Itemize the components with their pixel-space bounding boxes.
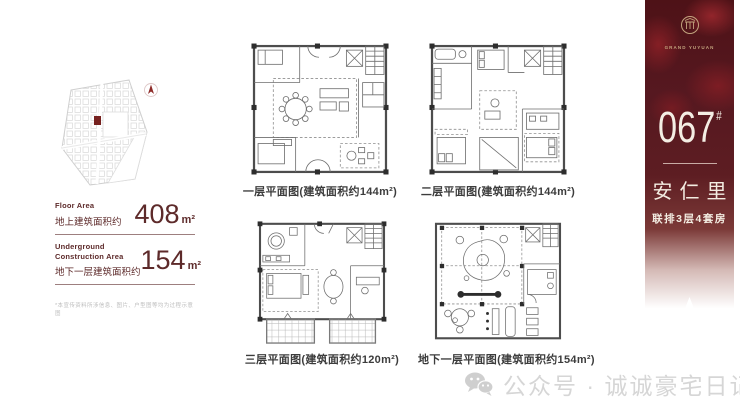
ribbon-divider [663,163,717,164]
floor-plan-first-caption: 一层平面图(建筑面积约144m²) [240,183,400,199]
floor-plan-second-caption: 二层平面图(建筑面积约144m²) [418,183,578,199]
underground-area-row: Underground Construction Area 地下一层建筑面积约 … [55,235,195,284]
floor-plan-third: 三层平面图(建筑面积约120m²) [242,220,402,367]
brand-logo: GRAND YUYUAN [645,14,734,50]
floor-plan-basement: 地下一层平面图(建筑面积约154m²) [418,220,578,367]
brand-logo-icon [673,14,707,38]
compass-icon [145,84,158,97]
unit-number: 067# [655,106,724,150]
floor-area-value: 408m² [134,201,195,228]
wechat-watermark: 公众号 · 诚诚豪宅日记 [464,367,740,401]
project-name: 安仁里 [645,175,734,204]
underground-area-label-zh: 地下一层建筑面积约 [55,264,141,278]
floor-area-row: Floor Area 地上建筑面积约 408m² [55,194,195,234]
underground-area-label-en: Underground Construction Area [55,242,127,262]
floor-area-label-zh: 地上建筑面积约 [55,214,122,228]
floor-plan-second-drawing [424,42,572,176]
floor-plan-first: 一层平面图(建筑面积约144m²) [240,42,400,199]
site-plan-map [50,74,168,196]
brochure-page: Floor Area 地上建筑面积约 408m² Underground Con… [0,0,740,411]
floor-plan-third-caption: 三层平面图(建筑面积约120m²) [242,351,402,367]
floor-area-label-en: Floor Area [55,201,122,211]
underground-area-value: 154m² [141,247,202,274]
floor-plan-first-drawing [246,42,394,176]
wechat-icon [464,371,494,397]
floor-plan-basement-caption: 地下一层平面图(建筑面积约154m²) [418,351,578,367]
area-info-panel: Floor Area 地上建筑面积约 408m² Underground Con… [55,194,195,317]
floor-plan-second: 二层平面图(建筑面积约144m²) [418,42,578,199]
highlighted-unit-marker [94,116,101,125]
divider [55,284,195,285]
project-ribbon: GRAND YUYUAN 067# 安仁里 联排3层4套房 [645,0,734,318]
disclaimer-text: *本宣传资料所涉信息、图片、户型图等均为过程示意图 [55,301,195,317]
floor-plan-third-drawing [248,220,396,344]
floor-plan-basement-drawing [424,220,572,344]
brand-name: GRAND YUYUAN [645,45,734,50]
watermark-text: 公众号 · 诚诚豪宅日记 [503,367,740,401]
project-subtitle: 联排3层4套房 [645,211,734,226]
